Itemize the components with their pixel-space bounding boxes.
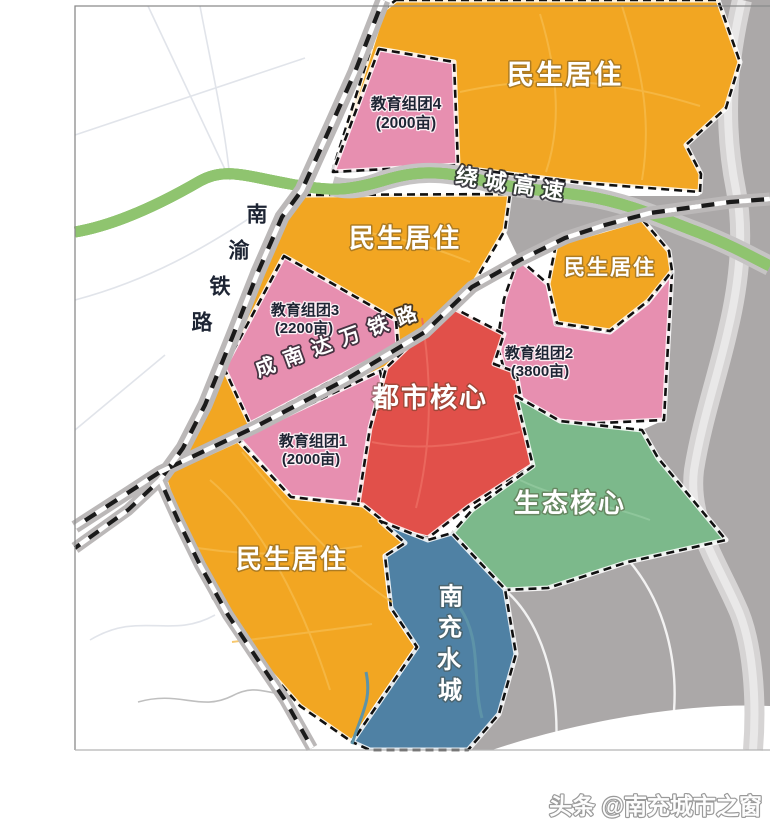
- label-nanyu-char2: 渝: [229, 239, 251, 263]
- label-edu3-name: 教育组团3: [270, 301, 339, 319]
- label-edu2-area: (3800亩): [511, 362, 569, 380]
- label-urban-core: 都市核心: [371, 382, 488, 413]
- label-residential-mid: 民生居住: [349, 223, 461, 253]
- label-edu4-name: 教育组团4: [371, 94, 442, 113]
- planning-map-page: 民生居住 民生居住 民生居住 民生居住 教育组团4 (2000亩) 教育组团3 …: [0, 0, 770, 830]
- label-residential-bottom: 民生居住: [236, 544, 348, 574]
- label-edu1-area: (2000亩): [282, 450, 340, 468]
- label-edu4-area: (2000亩): [376, 113, 436, 132]
- label-water-city-char2: 充: [438, 613, 464, 641]
- label-nanyu-char1: 南: [247, 203, 268, 227]
- label-water-city-char4: 城: [438, 676, 464, 704]
- label-edu2-name: 教育组团2: [504, 344, 573, 362]
- label-water-city-char1: 南: [439, 583, 465, 610]
- label-water-city-char3: 水: [437, 646, 463, 673]
- label-edu1-name: 教育组团1: [278, 432, 347, 450]
- planning-map: 民生居住 民生居住 民生居住 民生居住 教育组团4 (2000亩) 教育组团3 …: [0, 0, 770, 830]
- label-nanyu-char3: 铁: [210, 275, 231, 299]
- label-nanyu-char4: 路: [192, 311, 214, 335]
- watermark-text: 头条 @南充城市之窗: [549, 793, 762, 819]
- label-residential-right: 民生居住: [564, 256, 656, 280]
- label-eco-core: 生态核心: [514, 488, 626, 518]
- label-residential-top: 民生居住: [507, 59, 623, 90]
